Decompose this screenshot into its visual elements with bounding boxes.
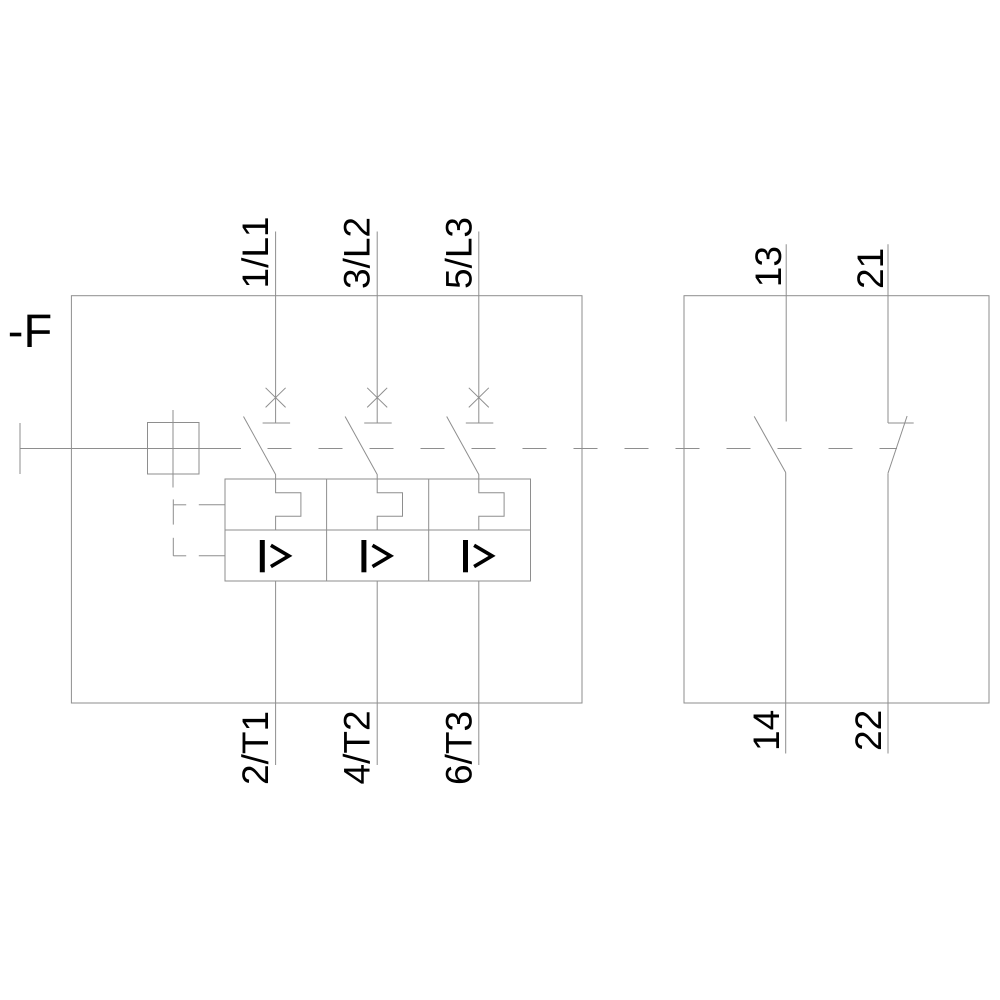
svg-text:13: 13 <box>748 246 789 287</box>
svg-text:2/T1: 2/T1 <box>235 711 276 785</box>
svg-text:5/L3: 5/L3 <box>438 217 479 289</box>
svg-text:6/T3: 6/T3 <box>438 711 479 785</box>
svg-text:14: 14 <box>746 710 787 751</box>
svg-text:22: 22 <box>848 710 889 751</box>
svg-text:3/L2: 3/L2 <box>337 217 378 289</box>
svg-text:1/L1: 1/L1 <box>235 216 276 288</box>
svg-text:4/T2: 4/T2 <box>337 710 378 784</box>
svg-text:-F: -F <box>8 304 52 357</box>
svg-text:21: 21 <box>850 248 891 289</box>
